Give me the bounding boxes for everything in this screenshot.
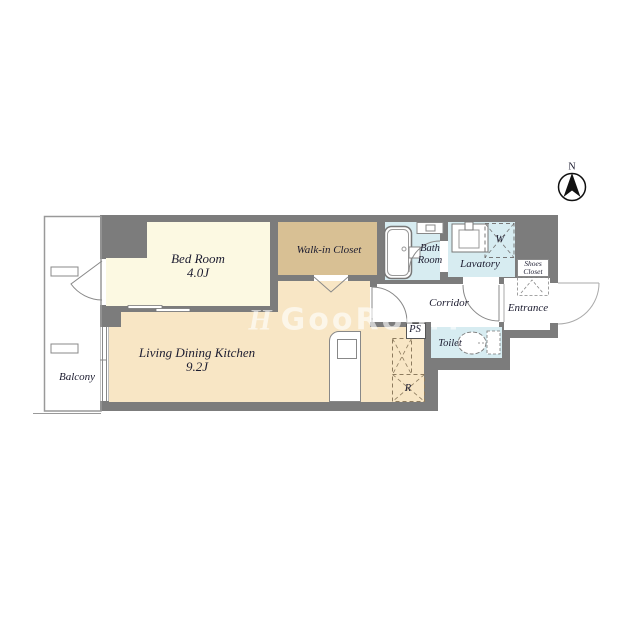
washer-label: W [495,233,504,245]
balcony-partition-upper [51,267,78,276]
toilet-tank [487,331,500,354]
sliding-door-panel-2 [156,309,190,312]
cupboard-diag-2 [393,339,412,375]
bath-faucet [426,225,435,231]
lavatory-label: Lavatory [460,258,500,270]
shoes-closet-label-line2: Closet [523,267,542,275]
compass-north-label: N [568,162,575,173]
kitchen-sink [337,339,357,359]
compass-needle-icon [564,173,581,197]
ldk-window-fill [101,327,109,401]
balcony-label: Balcony [59,371,95,383]
closet-folding-door [314,277,348,292]
entrance-door-arc [558,283,599,324]
bathtub-outer [385,227,412,279]
toilet-label: Toilet [438,338,462,350]
bedroom-size: 4.0J [187,266,209,280]
shoes-closet-hanger [521,280,543,293]
watermark-logo: H [248,304,274,337]
walk-in-closet-label: Walk-in Closet [297,244,362,256]
pipe-space-label: PS [409,324,421,336]
cupboard-diag-1 [393,339,412,375]
cupboard-space-box [393,339,412,375]
ldk-size: 9.2J [186,360,208,374]
corridor-label: Corridor [429,297,469,309]
lavatory-faucet [465,222,473,230]
bath-label-line2: Room [418,255,443,267]
sliding-door-panel-1 [128,306,162,309]
bath-label-line1: Bath [420,243,440,255]
floor-plan: Balcony Bed Room 4.0J Walk-in Closet Bat… [0,0,640,640]
entrance-label: Entrance [508,302,548,314]
shoes-closet-symbol [518,278,549,296]
balcony-partition-lower [51,344,78,353]
refrigerator-label: R [405,383,411,395]
lavatory-sink-bowl [459,230,479,248]
